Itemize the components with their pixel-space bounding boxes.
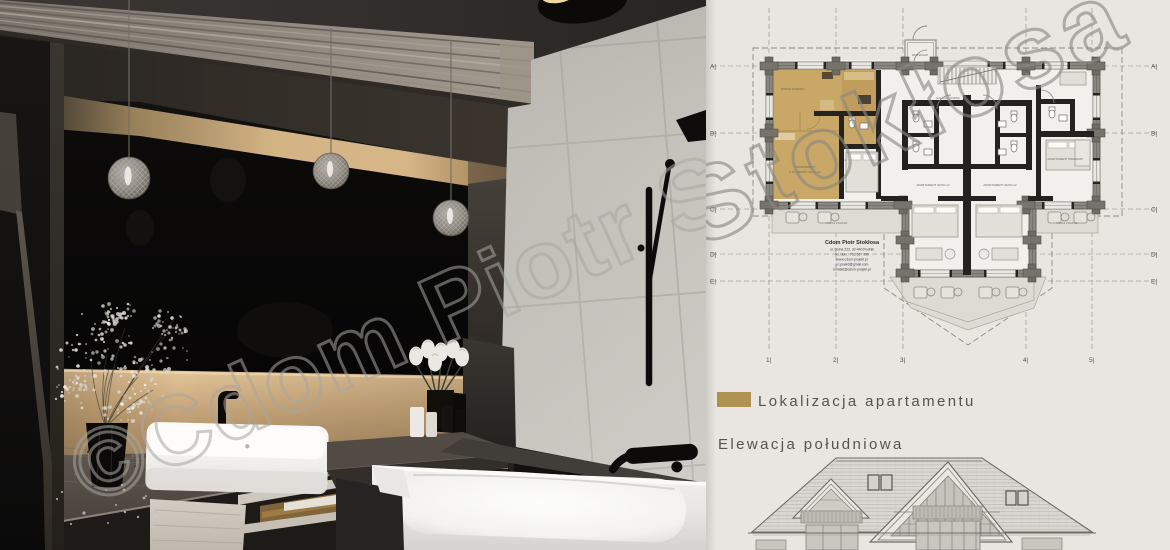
svg-text:kontakt@cdom-projekt.pl: kontakt@cdom-projekt.pl [833,268,871,272]
svg-text:TARAS ZADASZ.: TARAS ZADASZ. [1056,221,1078,225]
svg-text:www.cdom-projekt.pl: www.cdom-projekt.pl [836,258,868,262]
svg-text:E|: E| [710,279,716,286]
svg-text:ul. Dolna 222, 32-440 Rudnik: ul. Dolna 222, 32-440 Rudnik [830,248,874,252]
svg-text:3|: 3| [900,357,906,364]
svg-text:Lokalizacja apartamentu: Lokalizacja apartamentu [758,393,976,410]
svg-text:C|: C| [1151,207,1158,214]
svg-text:APARTAMENT 40,50 m2: APARTAMENT 40,50 m2 [983,183,1017,187]
svg-text:B|: B| [1151,131,1157,138]
svg-text:TARAS ZADASZ.: TARAS ZADASZ. [826,221,848,225]
svg-text:E|: E| [1151,279,1157,286]
svg-text:Cdom Piotr Stokłosa: Cdom Piotr Stokłosa [825,240,880,246]
svg-text:APARTAMENT 40,50 m2: APARTAMENT 40,50 m2 [916,183,950,187]
svg-text:4|: 4| [1023,357,1029,364]
svg-text:APARTAMENT PREMIUM: APARTAMENT PREMIUM [1048,157,1083,161]
svg-text:Elewacja południowa: Elewacja południowa [718,436,904,453]
svg-text:tel. dom.: 733 517 999: tel. dom.: 733 517 999 [835,253,869,257]
svg-text:A|: A| [710,64,716,71]
svg-text:POKOJ DZIENNY: POKOJ DZIENNY [781,87,805,91]
svg-text:D|: D| [1151,252,1158,259]
svg-text:B|: B| [710,131,716,138]
svg-text:5|: 5| [1089,357,1095,364]
svg-text:p.t.pswrd@gmail.com: p.t.pswrd@gmail.com [836,263,869,267]
svg-text:A|: A| [1151,64,1157,71]
svg-text:1|: 1| [766,357,772,364]
svg-text:2|: 2| [833,357,839,364]
